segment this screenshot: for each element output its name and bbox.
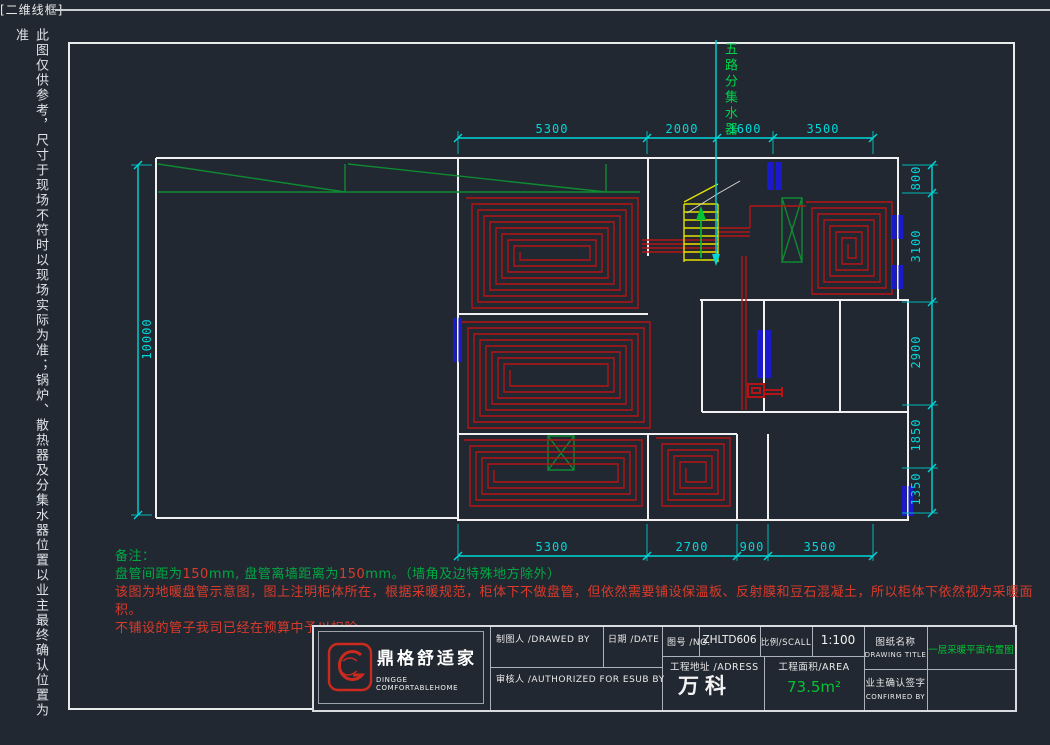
notes-title: 备注： [115, 548, 1050, 566]
area-value: 73.5m² [764, 678, 864, 696]
note-seg: 150 [183, 567, 209, 582]
title-block: 鼎格舒适家 DINGGE COMFORTABLEHOME 制图人 /DRAWED… [312, 625, 1017, 712]
dimension-label: 2900 [909, 322, 923, 382]
company-name-en: DINGGE COMFORTABLEHOME [376, 676, 483, 692]
company-logo-box: 鼎格舒适家 DINGGE COMFORTABLEHOME [318, 631, 484, 704]
dimension-label: 800 [909, 148, 923, 208]
heating-coil [464, 440, 642, 506]
authorized-by-label: 审核人 /AUTHORIZED FOR ESUB BY [496, 672, 665, 685]
scale-value: 1:100 [812, 633, 864, 647]
confirm-label-en: CONFIRMED BY [864, 693, 927, 701]
heating-coil [462, 322, 650, 428]
valve-fixture [748, 384, 782, 397]
note-seg: 盘管间距为 [115, 567, 183, 582]
dimension-label: 1850 [909, 405, 923, 465]
drawing-no-value: ZHLTD606 [699, 634, 760, 646]
company-name-cn: 鼎格舒适家 [377, 644, 477, 669]
scale-label: 比例/SCALL [760, 636, 812, 648]
drawing-title-label-cn: 图纸名称 [864, 634, 927, 648]
notes-line-cabinet: 该图为地暖盘管示意图，图上注明柜体所在，根据采暖规范，柜体下不做盘管，但依然需要… [115, 584, 1050, 620]
confirm-label-cn: 业主确认签字 [864, 675, 927, 689]
dimension-label: 5300 [522, 122, 582, 136]
dimension-label: 1350 [909, 459, 923, 519]
dimension-label: 2000 [652, 122, 712, 136]
manifold-callout: 五路分集水器 [720, 42, 739, 138]
windows [453, 162, 913, 516]
heating-coil [466, 198, 638, 308]
dimension-label: 3500 [793, 122, 853, 136]
heating-coil [656, 438, 730, 506]
dimension-label: 3100 [909, 216, 923, 276]
note-seg: mm。（墙角及边特殊地方除外） [365, 567, 560, 582]
stairs [684, 181, 740, 262]
drawing-title-label-en: DRAWING TITLE [864, 651, 927, 659]
drawed-by-label: 制图人 /DRAWED BY [496, 632, 590, 645]
dimension-label: 10000 [140, 309, 154, 369]
address-value: 万科 [678, 670, 732, 700]
note-seg: 150 [339, 567, 365, 582]
stair-direction-arrow [696, 206, 706, 220]
cad-canvas: [二维线框] 此图仅供参考，尺寸于现场不符时以现场实际为准；锅炉、散热器及分集水… [0, 0, 1050, 745]
walls [156, 158, 908, 520]
heating-coil [806, 202, 892, 294]
drawing-title-value: 一层采暖平面布置图 [927, 642, 1015, 656]
note-seg: mm, 盘管离墙距离为 [209, 567, 339, 582]
area-label: 工程面积/AREA [764, 659, 864, 673]
date-label: 日期 /DATE [608, 632, 659, 645]
company-logo-icon [327, 641, 373, 693]
notes-line-spacing: 盘管间距为150mm, 盘管离墙距离为150mm。（墙角及边特殊地方除外） [115, 566, 1050, 584]
